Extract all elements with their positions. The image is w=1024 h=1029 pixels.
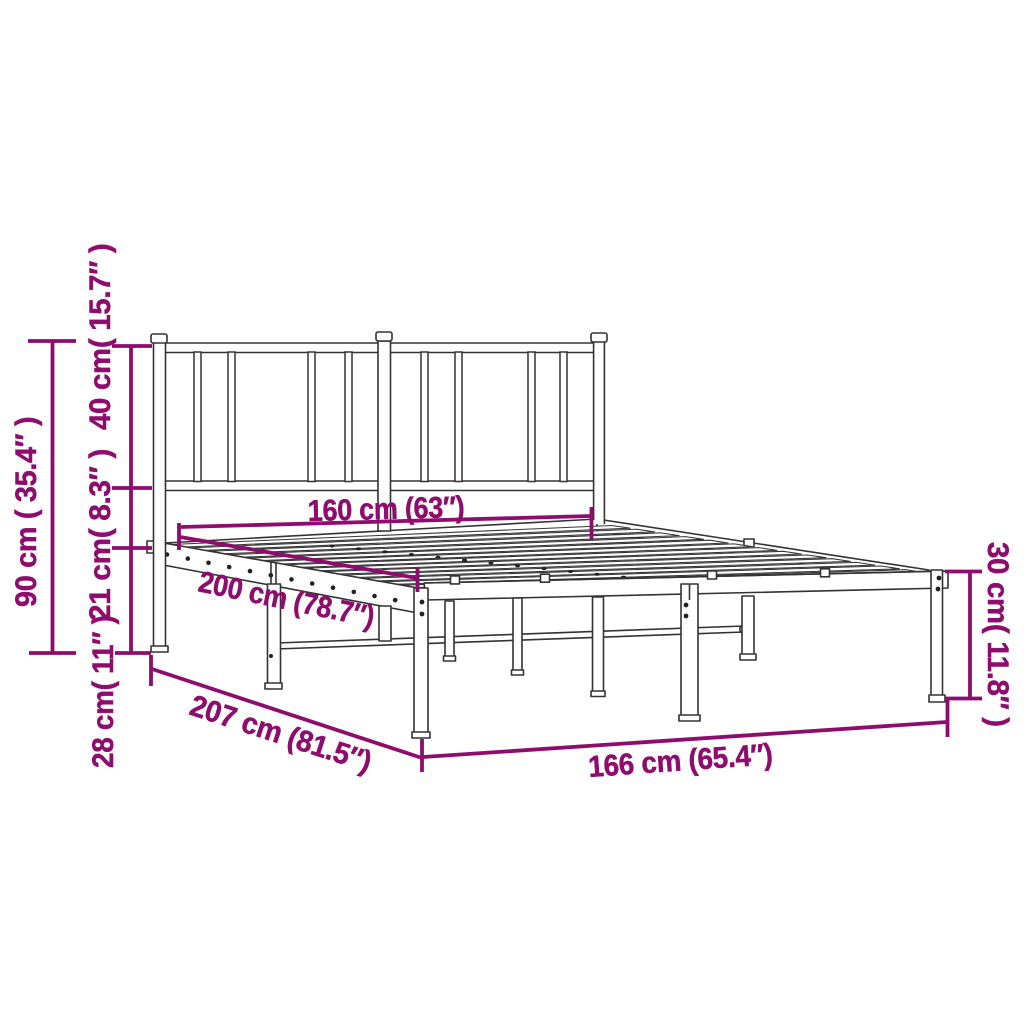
svg-text:160 cm (63″): 160 cm (63″) (307, 491, 464, 529)
svg-text:40 cm( 15.7″ ): 40 cm( 15.7″ ) (84, 244, 117, 430)
svg-text:21 cm( 8.3″ ): 21 cm( 8.3″ ) (84, 449, 117, 621)
svg-text:90 cm ( 35.4″ ): 90 cm ( 35.4″ ) (9, 417, 43, 607)
svg-text:28 cm( 11″ ): 28 cm( 11″ ) (87, 615, 120, 768)
svg-text:30 cm( 11.8″ ): 30 cm( 11.8″ ) (981, 542, 1014, 727)
